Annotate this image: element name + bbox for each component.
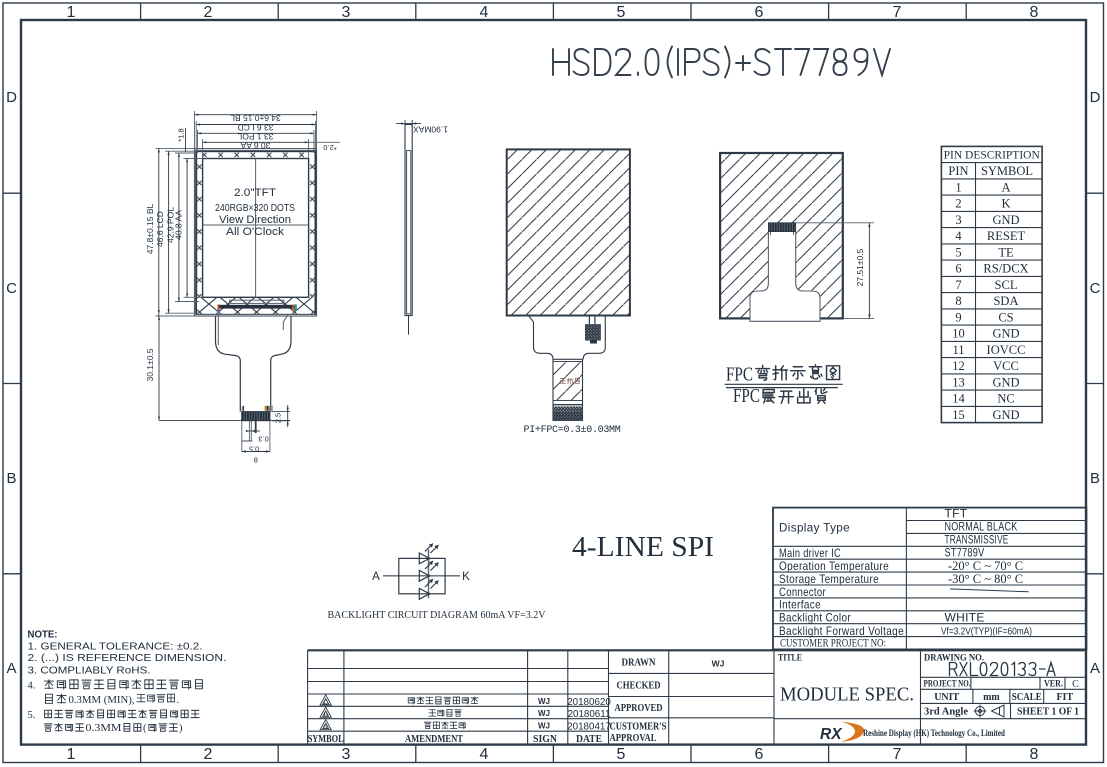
svg-text:RX: RX [820, 726, 843, 743]
svg-text:A: A [1001, 180, 1010, 194]
svg-text:2: 2 [204, 746, 213, 763]
svg-text:): ) [179, 723, 183, 734]
svg-text:2: 2 [955, 197, 961, 211]
svg-text:WJ: WJ [538, 722, 550, 731]
svg-text:0.3MM: 0.3MM [86, 723, 123, 734]
svg-text:Reshine Display (HK) Technolog: Reshine Display (HK) Technology Co., Lim… [863, 728, 1006, 739]
svg-text:30.1±0.5: 30.1±0.5 [145, 348, 155, 381]
svg-text:5: 5 [617, 746, 626, 763]
svg-text:47.8±0.15 BL: 47.8±0.15 BL [145, 203, 155, 254]
svg-text:14: 14 [952, 392, 965, 406]
svg-text:ST7789V: ST7789V [945, 546, 985, 560]
svg-text:0.5: 0.5 [249, 445, 259, 454]
svg-text:PI+FPC=0.3±0.03MM: PI+FPC=0.3±0.03MM [524, 425, 621, 436]
svg-text:46.6 LCD: 46.6 LCD [155, 211, 165, 247]
svg-text:Backlight Forward Voltage: Backlight Forward Voltage [779, 624, 904, 638]
svg-text:3. COMPLIABLY RoHS.: 3. COMPLIABLY RoHS. [28, 665, 151, 677]
svg-text:UNIT: UNIT [934, 692, 959, 703]
svg-text:SIGN: SIGN [533, 734, 558, 745]
svg-text:GND: GND [992, 213, 1019, 227]
svg-text:-30° C ~ 80° C: -30° C ~ 80° C [948, 572, 1023, 586]
svg-text:PROJECT NO.: PROJECT NO. [924, 679, 971, 689]
svg-text:20180417: 20180417 [567, 722, 611, 733]
svg-text:TFT: TFT [945, 507, 968, 521]
svg-text:FPC: FPC [733, 385, 760, 407]
svg-text:5.: 5. [28, 710, 36, 721]
svg-text:APPROVED: APPROVED [615, 703, 663, 714]
svg-text:GND: GND [992, 375, 1019, 389]
svg-text:C: C [324, 700, 328, 706]
svg-text:Operation Temperature: Operation Temperature [779, 559, 889, 573]
svg-text:DATE: DATE [576, 734, 602, 745]
svg-text:12: 12 [952, 359, 965, 373]
svg-text:0.3MM (MIN),: 0.3MM (MIN), [69, 695, 135, 706]
svg-text:Main driver IC: Main driver IC [779, 546, 841, 560]
svg-text:IOVCC: IOVCC [987, 343, 1026, 357]
svg-text:RS/DCX: RS/DCX [983, 262, 1028, 276]
svg-text:6: 6 [755, 746, 764, 763]
svg-text:Backlight Color: Backlight Color [779, 611, 851, 625]
svg-text:MODULE SPEC.: MODULE SPEC. [780, 684, 914, 706]
svg-text:8: 8 [955, 294, 961, 308]
svg-text:1: 1 [955, 180, 961, 194]
svg-text:2.0"TFT: 2.0"TFT [234, 187, 276, 199]
svg-text:4: 4 [955, 229, 962, 243]
svg-text:K: K [1001, 197, 1010, 211]
svg-text:20180620: 20180620 [567, 697, 611, 708]
svg-text:(: ( [143, 723, 147, 734]
svg-text:RESET: RESET [987, 229, 1026, 243]
svg-text:SCL: SCL [995, 278, 1018, 292]
svg-text:B: B [1090, 470, 1100, 487]
svg-text:3: 3 [342, 746, 351, 763]
svg-text:7: 7 [893, 4, 902, 21]
svg-text:SYMBOL: SYMBOL [981, 164, 1033, 178]
svg-text:Connector: Connector [779, 585, 826, 599]
svg-text:GND: GND [992, 327, 1019, 341]
svg-text:240RGB×320 DOTS: 240RGB×320 DOTS [215, 202, 295, 214]
svg-text:4: 4 [480, 746, 489, 763]
svg-text:7: 7 [955, 278, 961, 292]
svg-text:GND: GND [992, 408, 1019, 422]
svg-text:FIT: FIT [1056, 692, 1073, 703]
svg-text:20180611: 20180611 [568, 709, 611, 720]
svg-text:15: 15 [952, 408, 965, 422]
svg-text:33.6 LCD: 33.6 LCD [238, 123, 274, 133]
svg-text:1: 1 [67, 4, 76, 21]
svg-text:34.6±0.15 BL: 34.6±0.15 BL [230, 113, 281, 123]
svg-text:8: 8 [1030, 746, 1039, 763]
svg-text:BACKLIGHT CIRCUIT DIAGRAM 60m: BACKLIGHT CIRCUIT DIAGRAM 60mA VF=3.2V [328, 610, 546, 621]
svg-text:mm: mm [983, 692, 1000, 703]
svg-text:11: 11 [952, 343, 964, 357]
svg-text:VER.: VER. [1044, 679, 1063, 689]
svg-text:VCC: VCC [993, 359, 1019, 373]
svg-text:A: A [324, 725, 329, 731]
svg-text:3: 3 [342, 4, 351, 21]
svg-text:C: C [1090, 280, 1101, 297]
svg-text:5: 5 [617, 4, 626, 21]
svg-text:AMENDMENT: AMENDMENT [405, 734, 463, 745]
svg-text:2. (...) IS REFERENCE DIME: 2. (...) IS REFERENCE DIMENSION. [28, 652, 227, 664]
svg-text:1. GENERAL TOLERANCE: ±0.2.: 1. GENERAL TOLERANCE: ±0.2. [28, 640, 203, 652]
svg-text:CUSTOMER PROJECT NO:: CUSTOMER PROJECT NO: [780, 638, 886, 650]
svg-text:D: D [6, 89, 17, 106]
svg-text:PIN: PIN [948, 164, 968, 178]
svg-text:B: B [324, 713, 328, 719]
svg-text:40.8 AA: 40.8 AA [174, 210, 184, 240]
svg-text:Display Type: Display Type [779, 521, 850, 535]
svg-text:5: 5 [955, 245, 961, 259]
svg-text:10: 10 [952, 327, 965, 341]
svg-text:2: 2 [204, 4, 213, 21]
svg-text:SDA: SDA [993, 294, 1018, 308]
svg-text:Interface: Interface [779, 598, 821, 612]
svg-text:1.90MAX: 1.90MAX [413, 125, 448, 135]
svg-text:NC: NC [997, 392, 1014, 406]
svg-text:D: D [1090, 89, 1101, 106]
svg-text:C: C [6, 280, 17, 297]
svg-text:6: 6 [755, 4, 764, 21]
svg-text:6: 6 [955, 262, 961, 276]
svg-text:WHITE: WHITE [945, 611, 985, 625]
svg-text:NOTE:: NOTE: [28, 628, 58, 640]
svg-text:TITLE: TITLE [778, 654, 802, 664]
svg-text:CHECKED: CHECKED [617, 681, 661, 692]
svg-text:C: C [1072, 679, 1079, 690]
svg-text:27.51±0.5: 27.51±0.5 [855, 248, 865, 286]
svg-text:7: 7 [893, 746, 902, 763]
svg-text:*2.0: *2.0 [323, 143, 336, 152]
svg-text:0.3: 0.3 [258, 435, 268, 444]
svg-text:SHEET 1 OF 1: SHEET 1 OF 1 [1017, 707, 1079, 718]
svg-text:.: . [177, 695, 180, 706]
svg-text:WJ: WJ [712, 659, 725, 669]
svg-text:13: 13 [952, 375, 965, 389]
svg-text:APPROVAL: APPROVAL [610, 733, 657, 744]
svg-text:-20° C ~ 70° C: -20° C ~ 70° C [948, 559, 1023, 573]
svg-text:2.5: 2.5 [274, 413, 283, 423]
svg-text:CUSTOMER'S: CUSTOMER'S [610, 722, 667, 733]
svg-text:SCALE: SCALE [1012, 692, 1042, 703]
svg-text:WJ: WJ [538, 697, 550, 706]
svg-text:4-LINE SPI: 4-LINE SPI [572, 532, 714, 563]
svg-text:PIN DESCRIPTION: PIN DESCRIPTION [944, 149, 1041, 161]
svg-text:33.1 POL: 33.1 POL [237, 132, 273, 142]
svg-text:CS: CS [998, 310, 1013, 324]
svg-text:SYMBOL: SYMBOL [308, 734, 344, 745]
svg-text:Vf=3.2V(TYP)(IF=60mA): Vf=3.2V(TYP)(IF=60mA) [941, 626, 1032, 637]
svg-text:K: K [462, 571, 470, 583]
svg-text:8: 8 [1030, 4, 1039, 21]
svg-text:All O'Clock: All O'Clock [226, 226, 285, 238]
svg-text:WJ: WJ [538, 709, 550, 718]
svg-text:A: A [372, 571, 380, 583]
svg-text:30.6 AA: 30.6 AA [240, 141, 270, 151]
svg-text:8: 8 [254, 456, 258, 465]
svg-text:1: 1 [67, 746, 76, 763]
svg-text:*1.8: *1.8 [177, 128, 186, 141]
svg-text:A: A [6, 660, 16, 677]
svg-text:NORMAL BLACK: NORMAL BLACK [945, 520, 1018, 534]
svg-text:A: A [1090, 660, 1100, 677]
svg-text:TE: TE [998, 245, 1014, 259]
svg-text:3rd Angle: 3rd Angle [924, 707, 969, 718]
svg-text:4.: 4. [28, 681, 36, 692]
svg-text:B: B [6, 470, 16, 487]
svg-text:4: 4 [480, 4, 489, 21]
svg-text:TRANSMISSIVE: TRANSMISSIVE [945, 533, 1009, 547]
svg-text:FPC: FPC [726, 364, 753, 386]
svg-text:DRAWN: DRAWN [622, 658, 657, 669]
svg-text:9: 9 [955, 310, 961, 324]
svg-text:View Direction: View Direction [219, 214, 291, 226]
svg-text:3: 3 [955, 213, 961, 227]
